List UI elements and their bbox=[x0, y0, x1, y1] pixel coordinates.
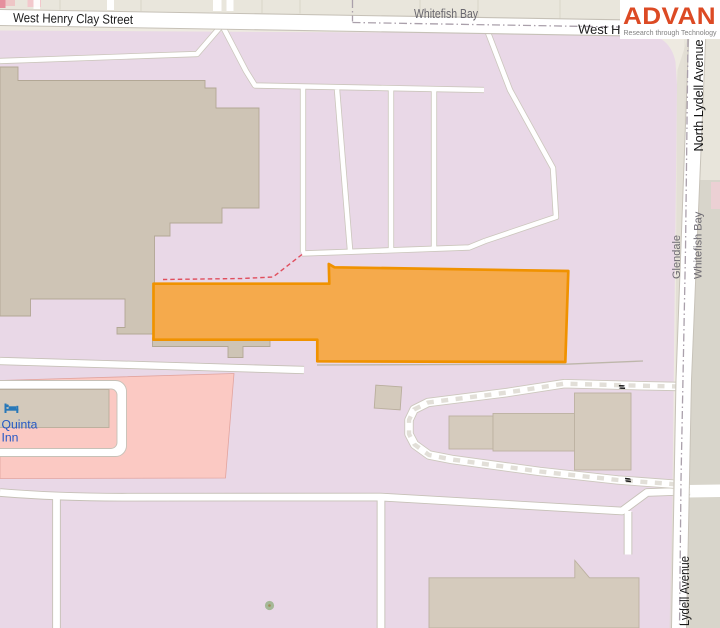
svg-text:Glendale: Glendale bbox=[671, 235, 683, 279]
svg-text:ADVAN: ADVAN bbox=[623, 3, 716, 30]
svg-text:West Henry Clay Street: West Henry Clay Street bbox=[13, 10, 134, 27]
svg-text:Inn: Inn bbox=[2, 431, 19, 445]
svg-text:Research through Technology: Research through Technology bbox=[624, 28, 717, 37]
svg-text:North Lydell Avenue: North Lydell Avenue bbox=[691, 40, 706, 152]
svg-text:Whitefish Bay: Whitefish Bay bbox=[414, 7, 479, 21]
svg-text:Lydell Avenue: Lydell Avenue bbox=[677, 556, 692, 626]
svg-text:Quinta: Quinta bbox=[2, 418, 38, 432]
svg-text:Whitefish Bay: Whitefish Bay bbox=[693, 211, 705, 279]
